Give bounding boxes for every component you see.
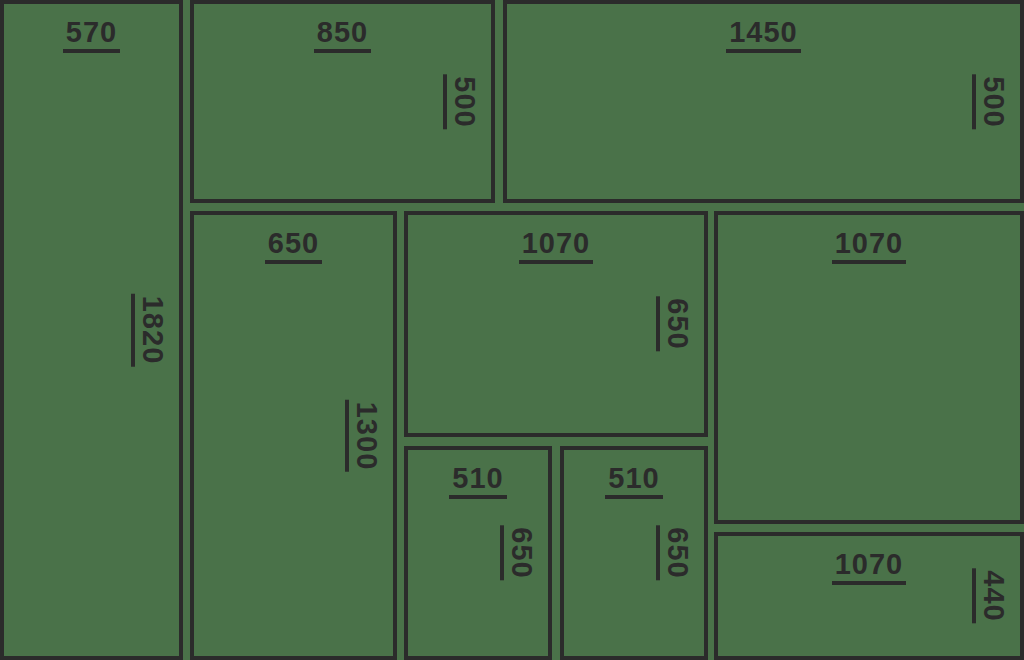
panel-height-label: 1820	[131, 294, 167, 367]
panel-height-value: 440	[972, 568, 1008, 623]
panel-height-value: 500	[972, 74, 1008, 129]
panel-height-value: 650	[656, 525, 692, 580]
panel-width-value: 650	[265, 229, 322, 264]
panel-height-label: 440	[972, 568, 1008, 623]
panel-width-value: 510	[605, 464, 662, 499]
panel-width-value: 850	[314, 18, 371, 53]
panel-width-label: 850	[194, 18, 491, 53]
panel-height-label: 650	[656, 296, 692, 351]
panel-width-label: 1450	[507, 18, 1020, 53]
panel-650x1300: 650 1300	[190, 211, 397, 660]
panel-height-value: 1300	[345, 399, 381, 472]
panel-height-label: 1300	[345, 399, 381, 472]
panel-width-value: 1070	[832, 550, 907, 585]
panel-1070x650: 1070 650	[404, 211, 708, 437]
panel-width-label: 510	[408, 464, 548, 499]
panel-1450x500: 1450 500	[503, 0, 1024, 203]
panel-width-value: 510	[449, 464, 506, 499]
panel-height-label: 650	[500, 525, 536, 580]
panel-1070-right: 1070	[714, 211, 1024, 524]
panel-width-label: 650	[194, 229, 393, 264]
panel-width-value: 1070	[832, 229, 907, 264]
panel-width-value: 1070	[519, 229, 594, 264]
panel-510x650-right: 510 650	[560, 446, 708, 660]
panel-height-value: 650	[500, 525, 536, 580]
panel-1070x440: 1070 440	[714, 532, 1024, 660]
panel-width-value: 570	[63, 18, 120, 53]
panel-width-value: 1450	[726, 18, 801, 53]
panel-width-label: 1070	[718, 229, 1020, 264]
panel-width-label: 510	[564, 464, 704, 499]
panel-570x1820: 570 1820	[0, 0, 183, 660]
panel-height-label: 500	[443, 74, 479, 129]
cutting-layout-board: 570 1820 850 500 1450 500 650 1300 1070 …	[0, 0, 1024, 660]
panel-height-label: 500	[972, 74, 1008, 129]
panel-height-value: 500	[443, 74, 479, 129]
panel-510x650-left: 510 650	[404, 446, 552, 660]
panel-height-value: 650	[656, 296, 692, 351]
panel-850x500: 850 500	[190, 0, 495, 203]
panel-height-value: 1820	[131, 294, 167, 367]
panel-width-label: 570	[4, 18, 179, 53]
panel-height-label: 650	[656, 525, 692, 580]
panel-width-label: 1070	[408, 229, 704, 264]
